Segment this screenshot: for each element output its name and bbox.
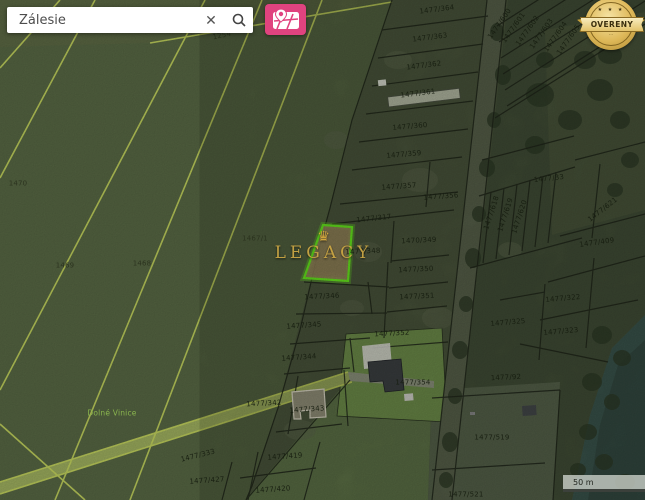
clear-search-button[interactable]: ✕ (197, 7, 225, 33)
search-icon (231, 12, 247, 28)
search-input[interactable] (7, 13, 197, 28)
scale-bar: 50 m (563, 475, 645, 492)
map-viewport[interactable]: 12541470146914681467/1Dolné Vinice1477/3… (0, 0, 645, 500)
map-pin-icon (271, 8, 301, 31)
satellite-map (0, 0, 645, 500)
map-style-button[interactable] (265, 4, 306, 35)
search-bar: ✕ (7, 7, 253, 33)
scale-label: 50 m (563, 478, 594, 487)
search-button[interactable] (225, 7, 253, 33)
